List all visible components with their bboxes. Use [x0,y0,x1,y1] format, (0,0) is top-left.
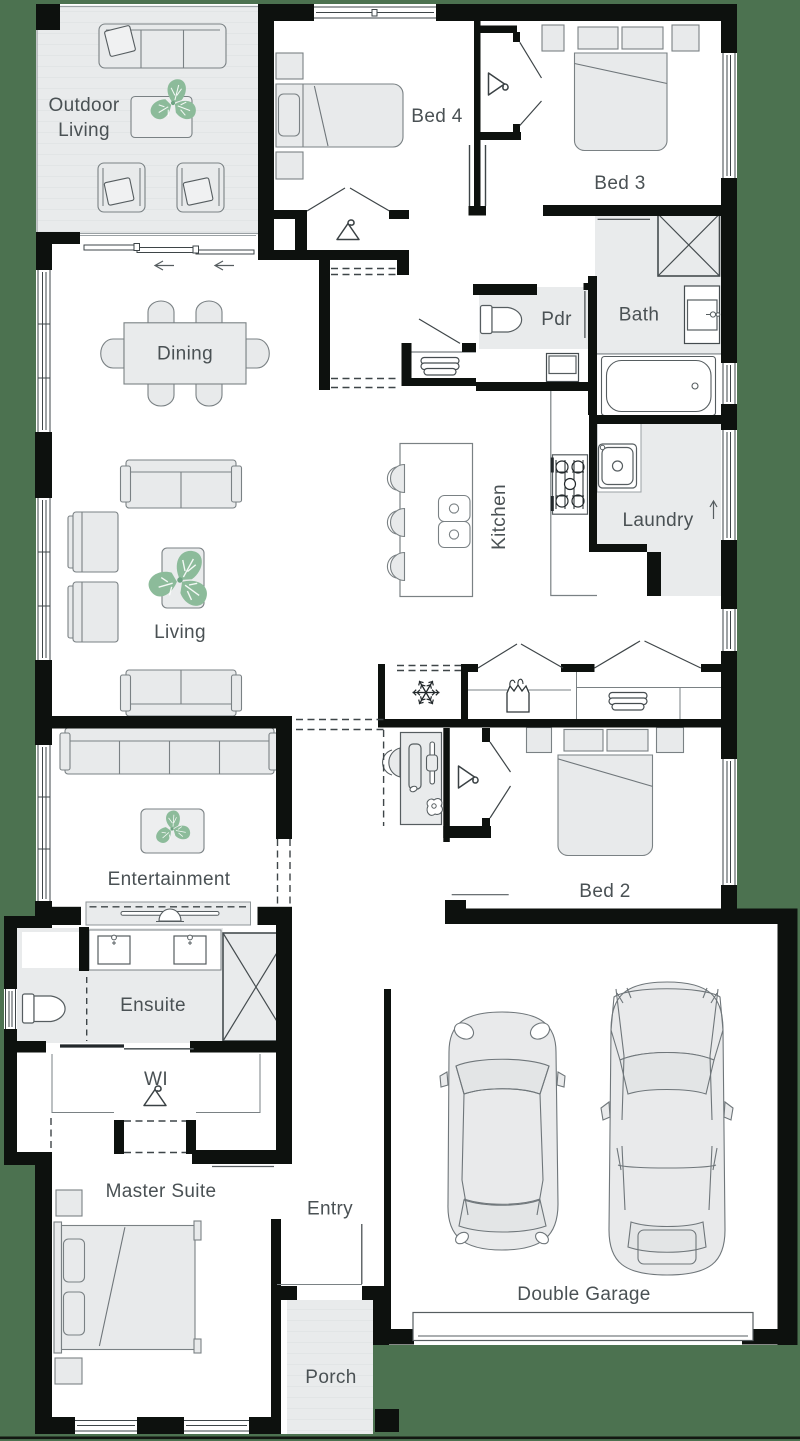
svg-text:Bath: Bath [619,305,660,326]
svg-text:Laundry: Laundry [622,510,693,531]
svg-text:Pdr: Pdr [541,309,572,330]
svg-text:Bed 4: Bed 4 [411,106,462,127]
svg-text:Double Garage: Double Garage [517,1284,650,1305]
svg-text:Kitchen: Kitchen [489,484,510,550]
svg-text:Living: Living [154,622,206,643]
svg-text:WI: WI [144,1069,168,1090]
svg-text:Master Suite: Master Suite [106,1181,217,1202]
svg-text:Porch: Porch [305,1367,356,1388]
svg-text:Bed 2: Bed 2 [579,881,630,902]
svg-text:Entry: Entry [307,1199,353,1220]
svg-text:Bed 3: Bed 3 [594,173,645,194]
svg-text:Entertainment: Entertainment [108,869,231,890]
svg-text:Living: Living [58,120,110,141]
svg-text:Ensuite: Ensuite [120,995,186,1016]
svg-text:Dining: Dining [157,344,213,365]
svg-text:Outdoor: Outdoor [48,95,119,116]
